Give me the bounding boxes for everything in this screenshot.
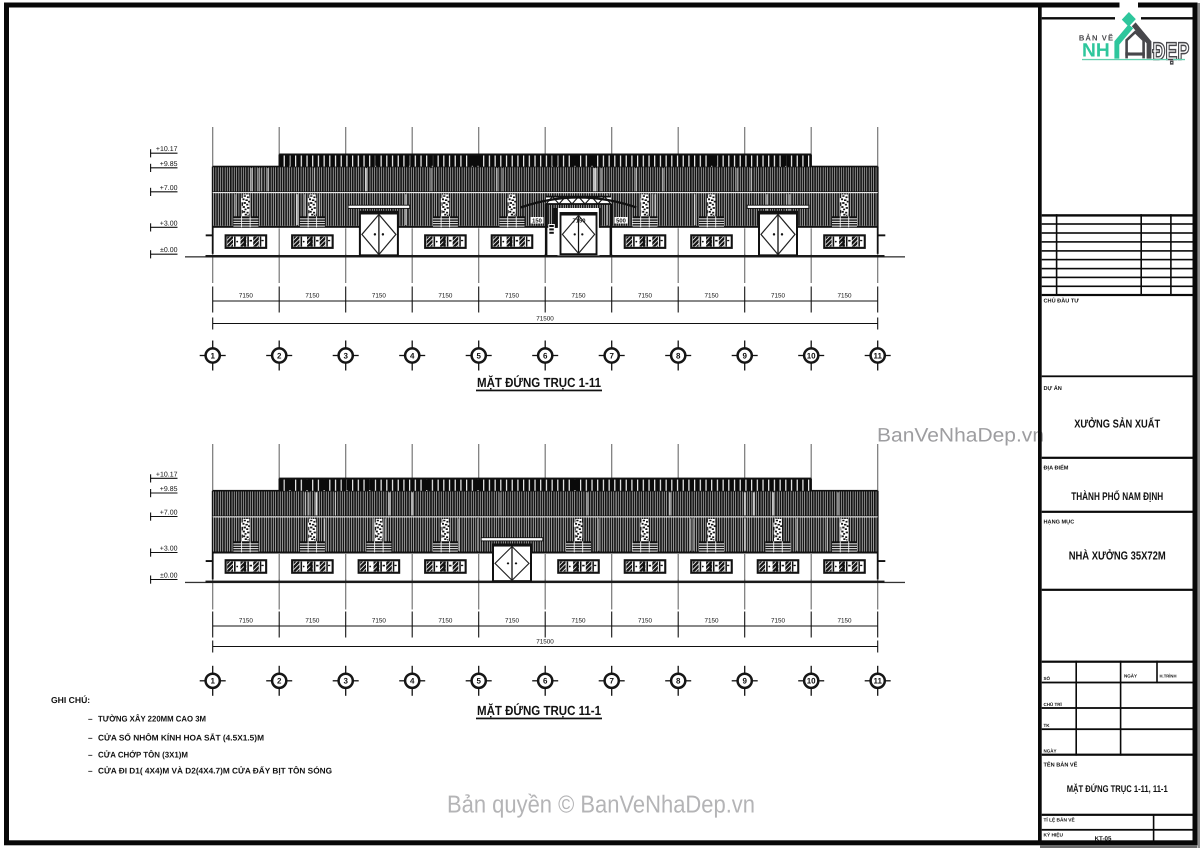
- svg-text:TƯỜNG XÂY 220MM CAO 3M: TƯỜNG XÂY 220MM CAO 3M: [98, 714, 206, 724]
- svg-text:NGÀY: NGÀY: [1124, 674, 1137, 679]
- svg-text:+7.00: +7.00: [160, 510, 178, 517]
- svg-text:10: 10: [807, 677, 816, 686]
- svg-text:150: 150: [532, 217, 542, 224]
- svg-text:–: –: [88, 715, 93, 724]
- svg-text:BanVeNhaDep.vn: BanVeNhaDep.vn: [877, 425, 1044, 447]
- svg-text:+7.00: +7.00: [160, 185, 178, 192]
- svg-text:6: 6: [543, 677, 548, 686]
- svg-text:7150: 7150: [837, 618, 852, 625]
- svg-text:Bản quyền © BanVeNhaDep.vn: Bản quyền © BanVeNhaDep.vn: [447, 791, 755, 818]
- svg-text:NH: NH: [1082, 40, 1110, 61]
- svg-text:TỈ LỆ BẢN VẼ: TỈ LỆ BẢN VẼ: [1044, 817, 1076, 824]
- svg-text:3: 3: [343, 351, 348, 360]
- svg-text:5: 5: [476, 351, 481, 360]
- svg-text:4: 4: [410, 351, 415, 360]
- svg-text:7150: 7150: [771, 293, 786, 300]
- svg-text:–: –: [88, 733, 93, 742]
- svg-text:6: 6: [543, 351, 548, 360]
- svg-text:ĐẸP: ĐẸP: [1153, 39, 1190, 66]
- svg-text:71500: 71500: [536, 638, 554, 645]
- svg-text:KÝ HIỆU: KÝ HIỆU: [1044, 832, 1064, 839]
- svg-text:CHỦ ĐẦU TƯ: CHỦ ĐẦU TƯ: [1044, 297, 1080, 305]
- svg-text:5: 5: [476, 677, 481, 686]
- svg-text:7150: 7150: [305, 293, 320, 300]
- svg-text:7150: 7150: [571, 618, 586, 625]
- svg-text:7150: 7150: [239, 618, 254, 625]
- svg-text:7150: 7150: [438, 293, 453, 300]
- svg-text:MẶT ĐỨNG TRỤC 1-11, 11-1: MẶT ĐỨNG TRỤC 1-11, 11-1: [1067, 783, 1169, 795]
- svg-text:7150: 7150: [704, 618, 719, 625]
- svg-text:3: 3: [343, 677, 348, 686]
- svg-text:1: 1: [210, 677, 215, 686]
- svg-text:H.TRÌNH: H.TRÌNH: [1160, 674, 1177, 679]
- svg-text:–: –: [88, 767, 93, 776]
- svg-text:TÊN BẢN VẼ: TÊN BẢN VẼ: [1044, 761, 1078, 769]
- svg-text:7150: 7150: [239, 293, 254, 300]
- svg-text:–: –: [88, 750, 93, 759]
- svg-text:CỬA SỔ NHÔM KÍNH HOA SẮT (4.5: CỬA SỔ NHÔM KÍNH HOA SẮT (4.5X1.5)M: [98, 732, 264, 742]
- svg-text:CỬA ĐI D1( 4X4)M VÀ D2(4X4.7)M: CỬA ĐI D1( 4X4)M VÀ D2(4X4.7)M CỬA ĐẨY B…: [98, 766, 332, 776]
- svg-text:+10.17: +10.17: [156, 471, 178, 478]
- svg-text:71500: 71500: [536, 315, 554, 322]
- svg-text:+10.17: +10.17: [156, 146, 178, 153]
- svg-text:NGÀY: NGÀY: [1044, 749, 1057, 754]
- svg-text:NHÀ XƯỞNG 35X72M: NHÀ XƯỞNG 35X72M: [1069, 549, 1166, 563]
- svg-text:7150: 7150: [372, 293, 387, 300]
- svg-text:±0.00: ±0.00: [160, 247, 178, 254]
- svg-text:8: 8: [676, 677, 681, 686]
- svg-text:DỰ ÁN: DỰ ÁN: [1044, 385, 1062, 392]
- svg-text:+3.00: +3.00: [160, 220, 178, 227]
- svg-text:MẶT ĐỨNG TRỤC 11-1: MẶT ĐỨNG TRỤC 11-1: [477, 703, 601, 718]
- svg-text:SỐ: SỐ: [1044, 675, 1051, 681]
- svg-text:+9.85: +9.85: [160, 161, 178, 168]
- svg-text:HẠNG MỤC: HẠNG MỤC: [1044, 520, 1075, 526]
- svg-text:KT-05: KT-05: [1095, 836, 1112, 843]
- svg-text:GHI CHÚ:: GHI CHÚ:: [51, 695, 90, 705]
- svg-text:11: 11: [873, 677, 882, 686]
- svg-text:2: 2: [277, 351, 282, 360]
- svg-text:TK: TK: [1044, 723, 1051, 728]
- svg-text:7150: 7150: [771, 618, 786, 625]
- svg-text:9: 9: [742, 351, 747, 360]
- svg-text:7150: 7150: [837, 293, 852, 300]
- svg-text:500: 500: [616, 217, 626, 224]
- svg-text:1: 1: [210, 351, 215, 360]
- svg-text:7150: 7150: [573, 217, 586, 224]
- svg-text:XƯỞNG SẢN XUẤT: XƯỞNG SẢN XUẤT: [1074, 417, 1160, 431]
- svg-text:8: 8: [676, 351, 681, 360]
- svg-text:MẶT ĐỨNG TRỤC 1-11: MẶT ĐỨNG TRỤC 1-11: [477, 375, 601, 390]
- svg-text:7: 7: [609, 677, 614, 686]
- svg-text:11: 11: [873, 351, 882, 360]
- svg-text:+3.00: +3.00: [160, 546, 178, 553]
- svg-text:7150: 7150: [305, 618, 320, 625]
- svg-text:CỬA CHỚP TÔN (3X1)M: CỬA CHỚP TÔN (3X1)M: [98, 749, 188, 759]
- svg-text:7150: 7150: [438, 618, 453, 625]
- svg-text:4: 4: [410, 677, 415, 686]
- svg-text:±0.00: ±0.00: [160, 573, 178, 580]
- svg-text:7150: 7150: [704, 293, 719, 300]
- svg-text:THÀNH PHỐ NAM ĐỊNH: THÀNH PHỐ NAM ĐỊNH: [1071, 490, 1163, 503]
- svg-text:7150: 7150: [638, 618, 653, 625]
- svg-text:ĐỊA ĐIỂM: ĐỊA ĐIỂM: [1044, 464, 1069, 472]
- svg-text:7150: 7150: [505, 618, 520, 625]
- svg-text:2: 2: [277, 677, 282, 686]
- svg-text:7150: 7150: [372, 618, 387, 625]
- svg-text:CHỦ TRÌ: CHỦ TRÌ: [1044, 701, 1063, 707]
- svg-text:7150: 7150: [505, 293, 520, 300]
- svg-text:10: 10: [807, 351, 816, 360]
- svg-text:+9.85: +9.85: [160, 486, 178, 493]
- svg-text:9: 9: [742, 677, 747, 686]
- svg-text:7: 7: [609, 351, 614, 360]
- svg-text:7150: 7150: [638, 293, 653, 300]
- svg-text:7150: 7150: [571, 293, 586, 300]
